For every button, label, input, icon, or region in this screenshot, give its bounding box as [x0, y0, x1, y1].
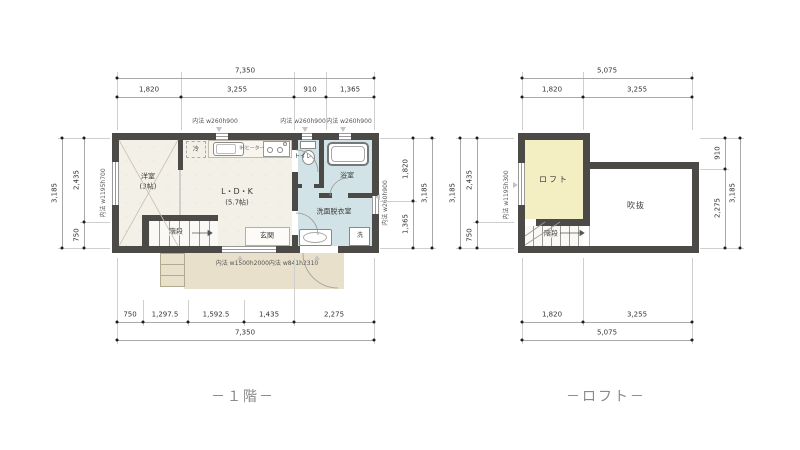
dimension-label: 3,185	[730, 183, 737, 203]
dimension-label: 7,350	[235, 330, 255, 337]
dimension-dot	[521, 96, 524, 99]
dimension-dot	[521, 321, 524, 324]
extension-line	[456, 248, 514, 249]
dimension-label: 1,820	[139, 87, 159, 94]
dimension-dot	[83, 221, 86, 224]
dimension-dot	[521, 339, 524, 342]
loft-window-left	[518, 163, 525, 205]
room-label-genkan: 玄関	[260, 233, 274, 240]
window-label-top3: 内法 w260h900	[326, 119, 372, 125]
dimension-dot	[61, 137, 64, 140]
extension-line	[117, 258, 118, 344]
dimension-label: 1,297.5	[152, 312, 179, 319]
dimension-line	[522, 322, 692, 323]
kitchen-sink-basin	[216, 144, 236, 154]
extension-line	[374, 72, 375, 130]
extension-line	[374, 258, 375, 344]
loft-wall-mid	[583, 133, 590, 226]
dimension-label: 5,075	[597, 68, 617, 75]
wall-bath-bottom-a	[319, 193, 332, 198]
room-label-kaidan1: 階段	[168, 229, 184, 236]
dimension-dot	[243, 321, 246, 324]
dimension-label: 3,255	[627, 312, 647, 319]
dimension-dot	[476, 137, 479, 140]
dimension-label: 1,365	[403, 214, 410, 234]
dimension-line	[740, 138, 741, 248]
dimension-dot	[476, 221, 479, 224]
dimension-line	[117, 322, 374, 323]
dimension-line	[117, 340, 374, 341]
dimension-label: 5,075	[597, 330, 617, 337]
dimension-dot	[180, 96, 183, 99]
dimension-dot	[724, 247, 727, 250]
dimension-dot	[116, 339, 119, 342]
loft-room-bottom-wall	[536, 219, 590, 226]
callout-icon	[375, 194, 380, 200]
dimension-dot	[373, 339, 376, 342]
loft-wall-right	[692, 162, 699, 253]
room-label-kaidan2: 階段	[543, 231, 559, 238]
senmen-door-gap	[292, 211, 298, 235]
extension-line	[456, 138, 514, 139]
extension-line	[692, 258, 693, 344]
dimension-dot	[691, 339, 694, 342]
dimension-dot	[739, 247, 742, 250]
loft-wall-top-left	[518, 133, 590, 140]
dimension-dot	[582, 96, 585, 99]
stove-burner-3	[283, 142, 287, 146]
dimension-line	[117, 97, 374, 98]
dimension-label: 3,185	[52, 183, 59, 203]
dimension-dot	[412, 137, 415, 140]
wall-toilet-bath	[319, 140, 324, 188]
callout-icon	[340, 127, 346, 132]
dimension-label: 2,275	[715, 198, 722, 218]
dimension-dot	[187, 321, 190, 324]
extension-line	[700, 138, 744, 139]
dimension-dot	[61, 247, 64, 250]
dimension-label: 1,435	[259, 312, 279, 319]
caption-loft: －ロフト－	[566, 386, 646, 406]
extension-line	[326, 72, 327, 130]
dimension-dot	[691, 96, 694, 99]
dimension-line	[117, 78, 374, 79]
dimension-label: 1,820	[542, 87, 562, 94]
extension-line	[522, 72, 523, 130]
toilet-cistern	[300, 141, 316, 149]
dimension-dot	[83, 247, 86, 250]
dimension-dot	[373, 77, 376, 80]
dimension-line	[460, 138, 461, 248]
dimension-dot	[83, 137, 86, 140]
dimension-line	[413, 138, 414, 248]
dimension-label: 1,592.5	[203, 312, 230, 319]
callout-icon	[237, 255, 243, 260]
window-bottom-ldk	[222, 246, 276, 253]
window-top-3	[339, 133, 351, 140]
extension-line	[294, 258, 295, 326]
dimension-dot	[116, 96, 119, 99]
room-label-toilet: トイレ	[294, 154, 312, 160]
wall-yoshitsu-right	[178, 140, 183, 170]
dimension-line	[432, 138, 433, 248]
dimension-label: 3,185	[450, 183, 457, 203]
dimension-label: 3,255	[227, 87, 247, 94]
dimension-label: 2,435	[74, 170, 81, 190]
extension-line	[692, 72, 693, 130]
dimension-label: 3,185	[422, 183, 429, 203]
dimension-label: 750	[74, 228, 81, 241]
room-label-senmen: 洗面脱衣室	[317, 209, 352, 216]
dimension-dot	[412, 200, 415, 203]
dimension-dot	[459, 137, 462, 140]
dimension-dot	[293, 321, 296, 324]
entrance-steps	[160, 253, 185, 287]
window-left	[112, 162, 119, 205]
extension-line	[294, 72, 295, 130]
dimension-dot	[521, 77, 524, 80]
entrance-door-gap	[300, 246, 338, 253]
floorplan-canvas: 洋室 (3帖) L・D・K (5.7帖) 玄関 トイレ 浴室 洗面脱衣室 階段 …	[0, 0, 800, 450]
loft-window-label-left: 内法 w1195h300	[504, 170, 510, 219]
dimension-line	[522, 97, 692, 98]
window-label-top2: 内法 w260h900	[280, 119, 326, 125]
room-label-yoshitsu: 洋室	[141, 174, 155, 181]
dimension-dot	[373, 96, 376, 99]
dimension-line	[477, 138, 478, 248]
dimension-label: 2,275	[324, 312, 344, 319]
extension-line	[473, 222, 514, 223]
callout-icon	[216, 127, 222, 132]
dimension-dot	[325, 96, 328, 99]
callout-icon	[302, 127, 308, 132]
dimension-line	[522, 78, 692, 79]
void-edge-line	[589, 226, 590, 246]
extension-line	[380, 248, 436, 249]
dimension-dot	[142, 321, 145, 324]
wall-toilet-bottom-a	[292, 184, 302, 188]
loft-wall-top-right	[583, 162, 699, 169]
dimension-dot	[293, 96, 296, 99]
extension-line	[700, 248, 744, 249]
dimension-dot	[582, 321, 585, 324]
dimension-dot	[739, 137, 742, 140]
dimension-dot	[724, 137, 727, 140]
dimension-dot	[691, 321, 694, 324]
room-label-bath: 浴室	[340, 173, 354, 180]
washbasin-bowl	[303, 232, 327, 243]
dimension-dot	[431, 137, 434, 140]
dimension-dot	[412, 247, 415, 250]
fixture-label-washer: 洗	[357, 233, 363, 239]
dimension-label: 910	[715, 146, 722, 159]
dimension-dot	[459, 247, 462, 250]
extension-line	[380, 138, 436, 139]
window-top-1	[216, 133, 228, 140]
stove-burner-2	[277, 147, 283, 153]
dimension-dot	[373, 321, 376, 324]
dimension-label: 910	[303, 87, 316, 94]
room-label-void: 吹抜	[627, 202, 645, 210]
dimension-label: 750	[123, 312, 136, 319]
dimension-line	[522, 340, 692, 341]
loft-wall-bottom	[518, 246, 699, 253]
fixture-label-fridge: 冷	[193, 147, 199, 153]
dimension-dot	[431, 247, 434, 250]
dimension-dot	[116, 321, 119, 324]
window-label-bottom: 内法 w1500h2000内法 w841h2310	[216, 261, 319, 267]
dimension-line	[84, 138, 85, 248]
extension-line	[117, 72, 118, 130]
dimension-line	[725, 138, 726, 248]
floor1-porch	[184, 253, 344, 289]
callout-icon	[513, 182, 518, 188]
dimension-label: 7,350	[235, 68, 255, 75]
room-label-loft: ロフト	[539, 176, 569, 184]
wall-stairs-left	[142, 215, 149, 253]
window-label-top1: 内法 w260h900	[192, 119, 238, 125]
dimension-dot	[724, 168, 727, 171]
dimension-line	[62, 138, 63, 248]
extension-line	[181, 72, 182, 130]
stairs-floor1	[150, 221, 218, 246]
dimension-label: 1,365	[340, 87, 360, 94]
extension-line	[522, 258, 523, 344]
dimension-dot	[116, 77, 119, 80]
dimension-label: 2,435	[467, 170, 474, 190]
window-label-left: 内法 w1195h700	[101, 168, 107, 217]
room-label-yoshitsu-size: (3帖)	[140, 184, 157, 191]
dimension-label: 3,255	[627, 87, 647, 94]
room-label-ldk-size: (5.7帖)	[225, 200, 249, 207]
dimension-label: 1,820	[403, 159, 410, 179]
fixture-label-stove: IHヒーター	[239, 147, 264, 152]
window-label-right: 内法 w260h900	[383, 180, 389, 226]
dimension-label: 750	[467, 228, 474, 241]
extension-line	[583, 72, 584, 130]
callout-icon	[314, 255, 320, 260]
caption-floor1: －１階－	[211, 386, 275, 406]
wall-toilet-bottom-b	[314, 184, 324, 188]
dimension-dot	[476, 247, 479, 250]
extension-line	[583, 258, 584, 326]
stove-burner-1	[267, 147, 273, 153]
window-top-2	[302, 133, 312, 140]
bathtub-inner	[331, 146, 365, 162]
dimension-label: 1,820	[542, 312, 562, 319]
room-label-ldk: L・D・K	[221, 188, 253, 196]
dimension-dot	[691, 77, 694, 80]
